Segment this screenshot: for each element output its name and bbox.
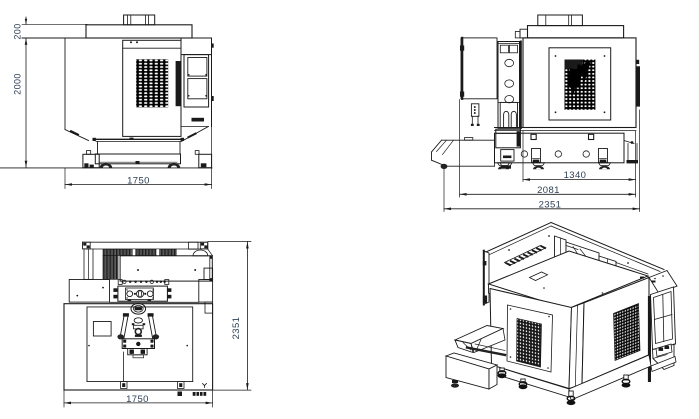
svg-text:200: 200 (13, 23, 23, 39)
svg-text:1340: 1340 (564, 170, 587, 181)
svg-text:2351: 2351 (539, 200, 562, 211)
svg-text:2000: 2000 (13, 73, 23, 95)
svg-text:2081: 2081 (537, 185, 560, 196)
svg-text:1750: 1750 (127, 175, 150, 186)
svg-text:1750: 1750 (126, 394, 149, 405)
svg-text:2351: 2351 (231, 317, 242, 340)
